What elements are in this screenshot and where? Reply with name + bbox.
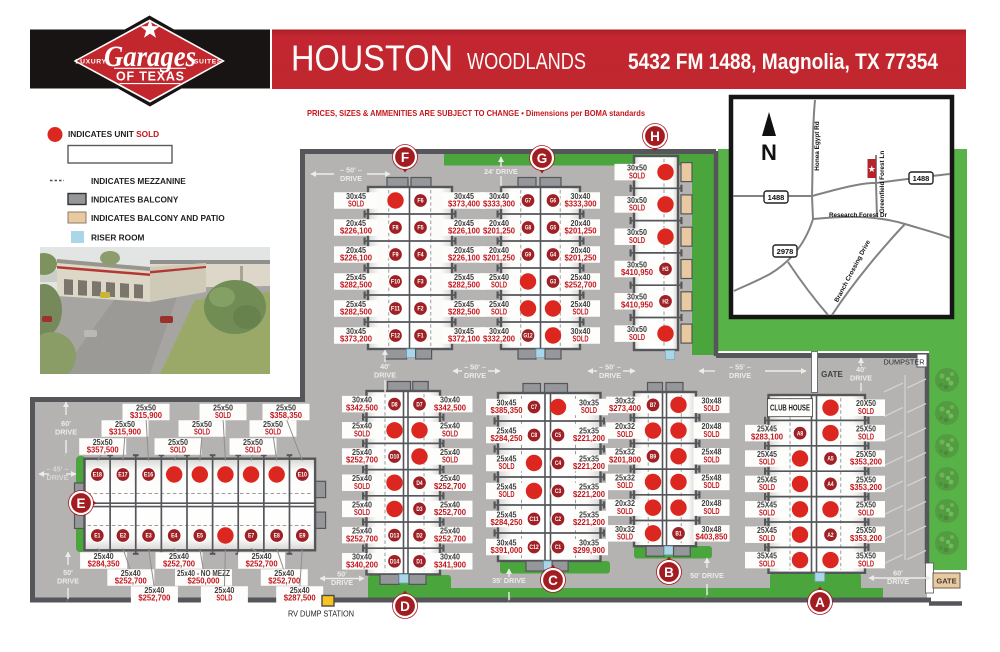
svg-text:$252,700: $252,700: [115, 577, 148, 586]
svg-text:$252,700: $252,700: [434, 534, 467, 543]
svg-text:$410,950: $410,950: [621, 268, 654, 277]
svg-text:RISER ROOM: RISER ROOM: [91, 233, 145, 243]
svg-text:$358,350: $358,350: [270, 411, 303, 420]
svg-text:$391,000: $391,000: [491, 546, 524, 555]
svg-text:E7: E7: [248, 533, 255, 540]
svg-text:$252,700: $252,700: [434, 508, 467, 517]
svg-text:DRIVE: DRIVE: [729, 371, 751, 380]
svg-text:SOLD: SOLD: [491, 308, 507, 317]
svg-text:2978: 2978: [777, 247, 794, 256]
svg-text:$284,250: $284,250: [491, 434, 524, 443]
svg-text:D13: D13: [390, 532, 400, 539]
svg-text:G: G: [537, 151, 548, 166]
svg-text:DRIVE: DRIVE: [47, 473, 69, 482]
svg-text:$315,900: $315,900: [109, 428, 142, 437]
svg-text:$353,200: $353,200: [850, 534, 883, 543]
svg-text:$372,100: $372,100: [448, 335, 481, 344]
svg-text:$342,500: $342,500: [346, 403, 379, 412]
svg-text:$252,700: $252,700: [246, 560, 279, 569]
svg-text:$226,100: $226,100: [448, 227, 481, 236]
svg-text:DRIVE: DRIVE: [464, 371, 486, 380]
svg-text:SOLD: SOLD: [348, 200, 364, 209]
svg-text:$333,300: $333,300: [565, 200, 598, 209]
svg-text:G4: G4: [550, 252, 557, 259]
svg-text:DRIVE: DRIVE: [55, 428, 77, 437]
svg-text:$252,700: $252,700: [138, 594, 171, 603]
svg-text:$287,500: $287,500: [284, 594, 317, 603]
svg-text:SOLD: SOLD: [499, 462, 515, 471]
svg-text:SOLD: SOLD: [194, 428, 210, 437]
svg-text:SOLD: SOLD: [573, 308, 589, 317]
svg-text:F11: F11: [391, 306, 401, 313]
svg-text:N: N: [761, 140, 777, 165]
svg-text:SOLD: SOLD: [858, 407, 874, 416]
svg-text:DRIVE: DRIVE: [374, 371, 396, 380]
svg-text:SOLD: SOLD: [442, 430, 458, 439]
svg-text:D: D: [400, 599, 410, 614]
svg-text:H2: H2: [662, 299, 669, 306]
svg-text:RV DUMP STATION: RV DUMP STATION: [288, 610, 354, 619]
svg-text:B: B: [664, 565, 674, 580]
svg-text:DRIVE: DRIVE: [340, 174, 362, 183]
svg-text:$226,100: $226,100: [448, 254, 481, 263]
svg-text:E8: E8: [274, 533, 281, 540]
svg-text:$273,400: $273,400: [609, 404, 642, 413]
svg-text:$284,350: $284,350: [88, 560, 121, 569]
svg-text:SOLD: SOLD: [245, 446, 261, 455]
svg-text:SOLD: SOLD: [759, 559, 775, 568]
svg-text:SOLD: SOLD: [354, 508, 370, 517]
svg-text:A4: A4: [827, 481, 834, 488]
svg-text:C8: C8: [531, 432, 538, 439]
svg-text:1488: 1488: [768, 193, 785, 202]
svg-text:SOLD: SOLD: [704, 404, 720, 413]
svg-text:E17: E17: [118, 472, 128, 479]
svg-text:$221,200: $221,200: [573, 434, 606, 443]
svg-text:E2: E2: [120, 533, 127, 540]
svg-text:F8: F8: [392, 225, 399, 232]
svg-text:$201,250: $201,250: [483, 227, 516, 236]
svg-text:E9: E9: [299, 533, 306, 540]
svg-text:E3: E3: [145, 533, 152, 540]
svg-text:SOLD: SOLD: [629, 236, 645, 245]
svg-text:SOLD: SOLD: [442, 456, 458, 465]
svg-text:$284,250: $284,250: [491, 518, 524, 527]
svg-text:$252,700: $252,700: [268, 577, 301, 586]
svg-text:A: A: [815, 595, 825, 610]
svg-text:$332,200: $332,200: [483, 335, 516, 344]
svg-text:SOLD: SOLD: [704, 430, 720, 439]
svg-text:B7: B7: [650, 402, 657, 409]
svg-text:$201,250: $201,250: [565, 227, 598, 236]
svg-text:SOLD: SOLD: [704, 507, 720, 516]
svg-text:35' DRIVE: 35' DRIVE: [492, 576, 526, 585]
svg-text:D14: D14: [390, 559, 400, 566]
svg-text:$357,500: $357,500: [87, 446, 120, 455]
svg-text:D4: D4: [416, 480, 423, 487]
svg-text:C5: C5: [555, 432, 562, 439]
svg-text:F4: F4: [417, 252, 424, 259]
svg-text:SOLD: SOLD: [581, 406, 597, 415]
svg-text:H: H: [650, 129, 660, 144]
svg-text:SOLD: SOLD: [491, 281, 507, 290]
svg-text:G7: G7: [525, 198, 532, 205]
svg-text:G5: G5: [550, 225, 557, 232]
svg-text:DRIVE: DRIVE: [850, 374, 872, 383]
svg-text:C: C: [548, 573, 558, 588]
svg-text:5432 FM 1488, Magnolia, TX 773: 5432 FM 1488, Magnolia, TX 77354: [628, 49, 938, 74]
svg-text:A5: A5: [827, 456, 834, 463]
svg-text:SOLD: SOLD: [759, 534, 775, 543]
svg-text:SOLD: SOLD: [704, 455, 720, 464]
svg-text:INDICATES BALCONY AND PATIO: INDICATES BALCONY AND PATIO: [91, 213, 225, 223]
svg-text:D8: D8: [391, 401, 398, 408]
svg-text:$252,700: $252,700: [434, 482, 467, 491]
svg-text:E16: E16: [144, 472, 154, 479]
svg-text:E18: E18: [93, 472, 103, 479]
svg-text:DRIVE: DRIVE: [57, 577, 79, 586]
svg-text:G6: G6: [550, 198, 557, 205]
svg-text:SUITES: SUITES: [194, 59, 222, 66]
svg-text:$282,500: $282,500: [340, 308, 373, 317]
svg-text:$226,100: $226,100: [340, 254, 373, 263]
svg-text:INDICATES BALCONY: INDICATES BALCONY: [91, 195, 179, 205]
svg-text:OF TEXAS: OF TEXAS: [116, 70, 184, 84]
svg-text:$252,700: $252,700: [565, 281, 598, 290]
svg-text:24' DRIVE: 24' DRIVE: [484, 167, 518, 176]
svg-text:D10: D10: [390, 454, 400, 461]
svg-text:D3: D3: [416, 506, 423, 513]
svg-text:CLUB HOUSE: CLUB HOUSE: [770, 404, 810, 413]
svg-text:$282,500: $282,500: [448, 281, 481, 290]
svg-text:B9: B9: [650, 453, 657, 460]
svg-text:SOLD: SOLD: [617, 507, 633, 516]
svg-text:SOLD: SOLD: [499, 490, 515, 499]
svg-text:$221,200: $221,200: [573, 490, 606, 499]
svg-text:SOLD: SOLD: [858, 509, 874, 518]
svg-text:$373,400: $373,400: [448, 200, 481, 209]
svg-text:C3: C3: [555, 488, 562, 495]
svg-text:$221,200: $221,200: [573, 518, 606, 527]
svg-text:LUXURY: LUXURY: [75, 59, 106, 66]
svg-text:SOLD: SOLD: [617, 533, 633, 542]
svg-text:$410,950: $410,950: [621, 301, 654, 310]
svg-text:SOLD: SOLD: [265, 428, 281, 437]
svg-text:HOUSTON: HOUSTON: [291, 38, 453, 79]
svg-text:WOODLANDS: WOODLANDS: [467, 48, 586, 74]
svg-text:Greenfield Forest Ln: Greenfield Forest Ln: [879, 151, 886, 214]
svg-text:SOLD: SOLD: [704, 481, 720, 490]
svg-text:SOLD: SOLD: [215, 411, 231, 420]
svg-text:$373,200: $373,200: [340, 335, 373, 344]
svg-text:E10: E10: [298, 472, 308, 479]
svg-text:SOLD: SOLD: [759, 483, 775, 492]
svg-text:H3: H3: [662, 266, 669, 273]
svg-text:C2: C2: [555, 516, 562, 523]
svg-text:SOLD: SOLD: [617, 481, 633, 490]
svg-text:F5: F5: [417, 225, 424, 232]
svg-text:$252,700: $252,700: [346, 456, 379, 465]
svg-text:$201,250: $201,250: [565, 254, 598, 263]
svg-text:INDICATES MEZZANINE: INDICATES MEZZANINE: [91, 176, 186, 186]
svg-text:SOLD: SOLD: [858, 559, 874, 568]
svg-text:$299,900: $299,900: [573, 546, 606, 555]
svg-text:G8: G8: [525, 225, 532, 232]
svg-text:$403,850: $403,850: [696, 533, 729, 542]
svg-text:C4: C4: [555, 460, 562, 467]
svg-text:DRIVE: DRIVE: [599, 371, 621, 380]
svg-text:F12: F12: [391, 333, 401, 340]
svg-text:Honea Egypt Rd: Honea Egypt Rd: [814, 121, 821, 170]
svg-text:DRIVE: DRIVE: [331, 578, 353, 587]
svg-text:SOLD: SOLD: [170, 446, 186, 455]
svg-text:SOLD: SOLD: [629, 333, 645, 342]
svg-text:$282,500: $282,500: [340, 281, 373, 290]
svg-text:INDICATES UNIT SOLD: INDICATES UNIT SOLD: [68, 129, 159, 139]
svg-text:DUMPSTER: DUMPSTER: [884, 358, 925, 367]
svg-text:B1: B1: [675, 531, 682, 538]
svg-text:SOLD: SOLD: [354, 482, 370, 491]
svg-text:A8: A8: [797, 430, 804, 437]
svg-text:F2: F2: [417, 306, 424, 313]
svg-text:C12: C12: [529, 544, 539, 551]
svg-text:DRIVE: DRIVE: [887, 577, 909, 586]
svg-text:★: ★: [868, 164, 876, 174]
svg-text:1488: 1488: [913, 174, 930, 183]
svg-text:G9: G9: [525, 252, 532, 259]
svg-text:SOLD: SOLD: [216, 594, 232, 603]
svg-text:GATE: GATE: [936, 577, 956, 586]
svg-text:$201,250: $201,250: [483, 254, 516, 263]
svg-text:E5: E5: [197, 533, 204, 540]
svg-text:$340,200: $340,200: [346, 561, 379, 570]
svg-text:D2: D2: [416, 532, 423, 539]
svg-text:Research Forest Dr: Research Forest Dr: [829, 212, 888, 219]
svg-text:SOLD: SOLD: [354, 430, 370, 439]
svg-text:G3: G3: [550, 279, 557, 286]
svg-text:$252,700: $252,700: [163, 560, 196, 569]
svg-text:$226,100: $226,100: [340, 227, 373, 236]
svg-text:A2: A2: [827, 532, 834, 539]
svg-text:SOLD: SOLD: [759, 509, 775, 518]
svg-text:$315,900: $315,900: [130, 411, 163, 420]
svg-text:F6: F6: [417, 198, 424, 205]
svg-text:SOLD: SOLD: [629, 171, 645, 180]
svg-text:$201,800: $201,800: [609, 455, 642, 464]
svg-text:PRICES, SIZES & AMMENITIES ARE: PRICES, SIZES & AMMENITIES ARE SUBJECT T…: [307, 108, 645, 118]
svg-text:F1: F1: [417, 333, 424, 340]
svg-text:50' DRIVE: 50' DRIVE: [690, 571, 724, 580]
svg-text:$250,000: $250,000: [188, 577, 221, 586]
svg-text:SOLD: SOLD: [573, 335, 589, 344]
svg-text:D7: D7: [416, 401, 423, 408]
svg-text:SOLD: SOLD: [617, 430, 633, 439]
svg-text:F10: F10: [391, 279, 401, 286]
svg-text:E: E: [76, 496, 85, 511]
svg-text:E4: E4: [171, 533, 178, 540]
svg-text:D1: D1: [416, 559, 423, 566]
svg-text:$353,200: $353,200: [850, 458, 883, 467]
svg-text:C7: C7: [531, 404, 538, 411]
svg-text:G12: G12: [523, 333, 533, 340]
svg-text:$282,500: $282,500: [448, 308, 481, 317]
svg-text:SOLD: SOLD: [759, 458, 775, 467]
svg-text:SOLD: SOLD: [858, 432, 874, 441]
svg-text:$385,350: $385,350: [491, 406, 524, 415]
svg-text:F3: F3: [417, 279, 424, 286]
svg-text:F9: F9: [392, 252, 399, 259]
svg-text:GATE: GATE: [821, 370, 843, 379]
svg-text:E1: E1: [94, 533, 101, 540]
svg-text:F: F: [401, 150, 409, 165]
svg-text:SOLD: SOLD: [629, 204, 645, 213]
svg-text:$283,100: $283,100: [751, 432, 784, 441]
svg-text:$333,300: $333,300: [483, 200, 516, 209]
svg-text:C1: C1: [555, 544, 562, 551]
svg-text:$221,200: $221,200: [573, 462, 606, 471]
svg-text:$353,200: $353,200: [850, 483, 883, 492]
svg-text:$342,500: $342,500: [434, 403, 467, 412]
svg-text:$252,700: $252,700: [346, 534, 379, 543]
svg-text:C11: C11: [529, 516, 539, 523]
svg-text:$341,900: $341,900: [434, 561, 467, 570]
